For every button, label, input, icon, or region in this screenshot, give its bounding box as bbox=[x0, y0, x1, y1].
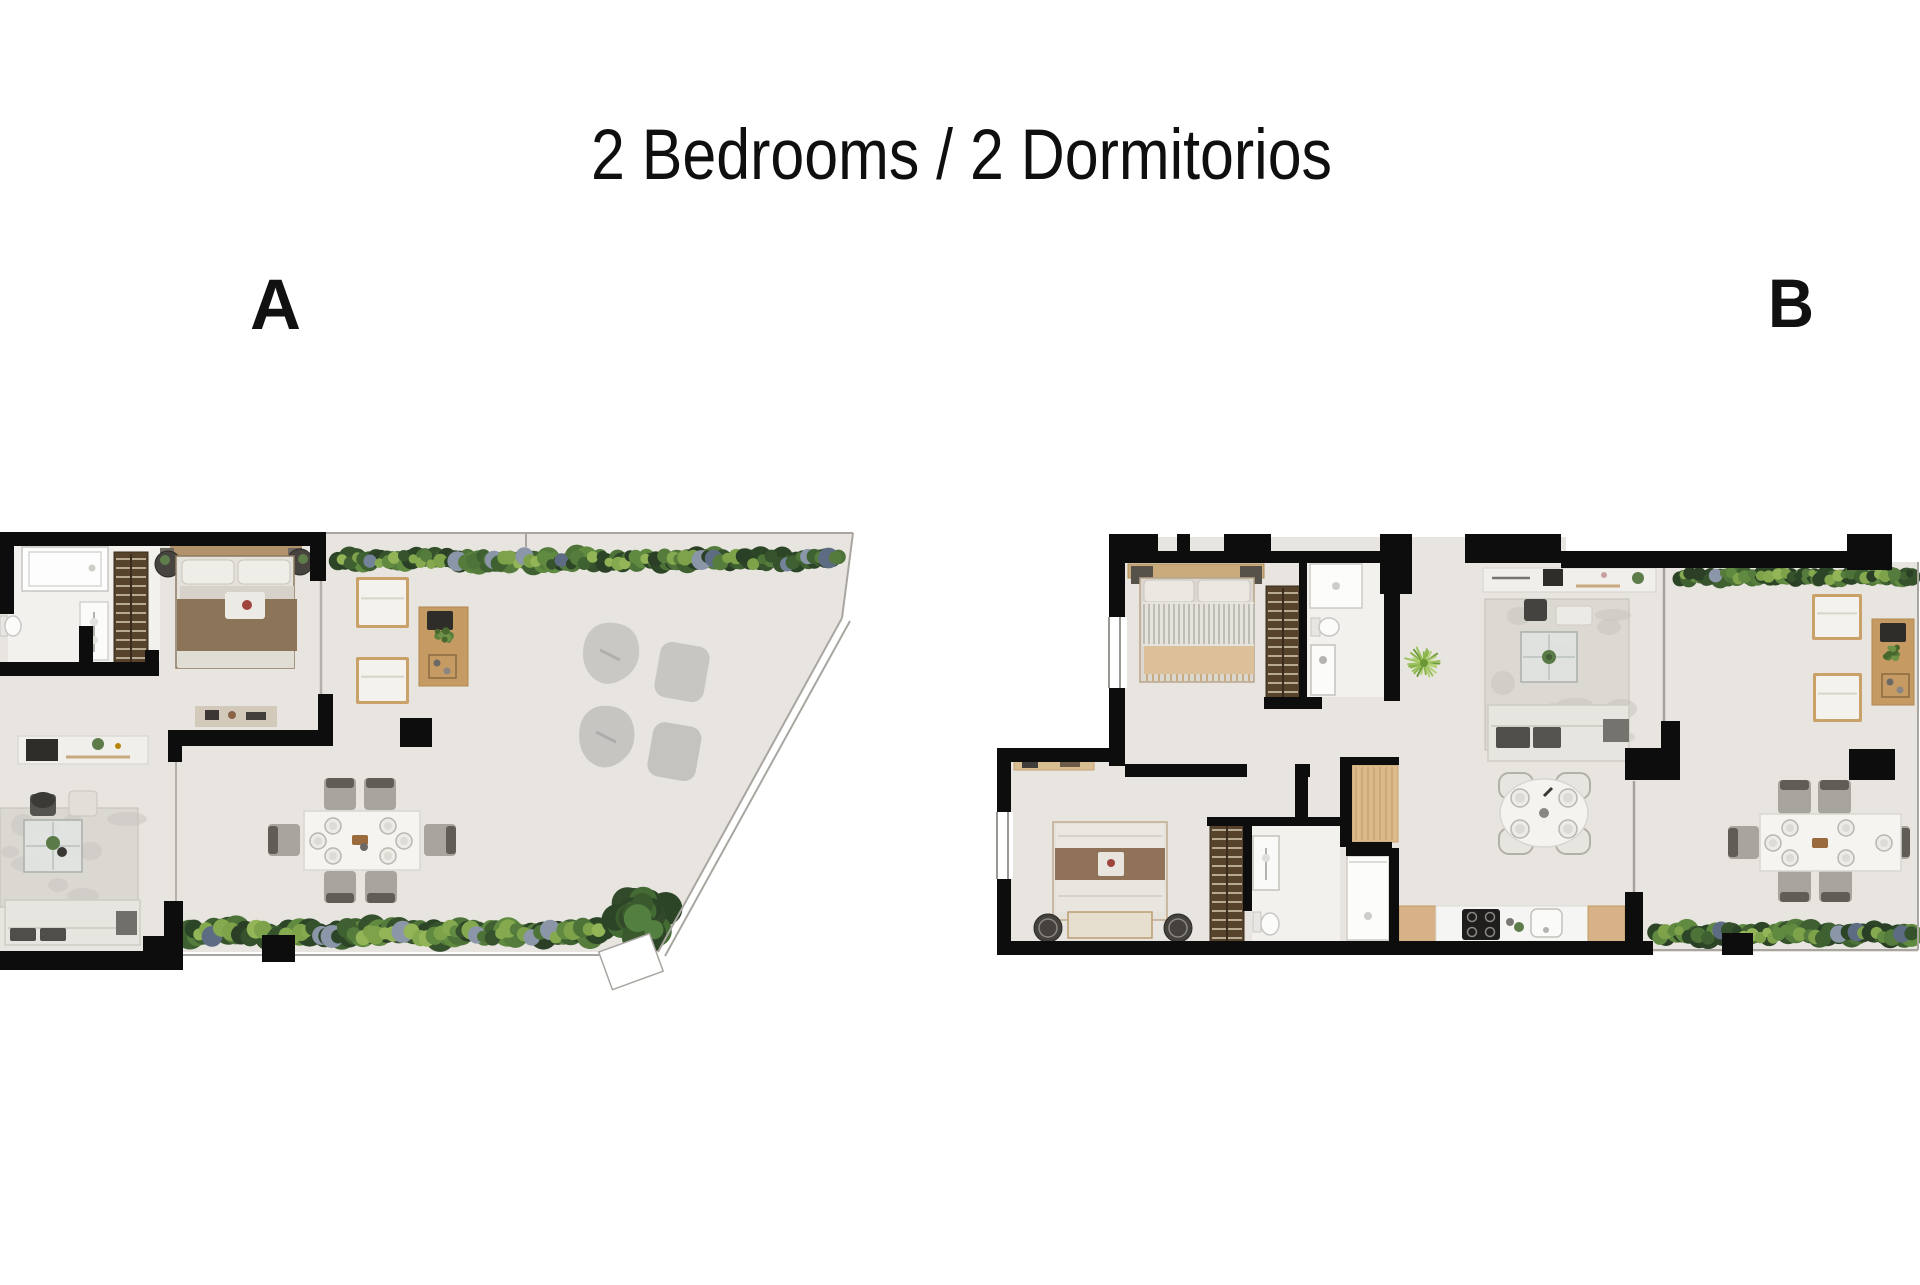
svg-text:B: B bbox=[1768, 265, 1814, 342]
svg-text:2 Bedrooms / 2 Dormitorios: 2 Bedrooms / 2 Dormitorios bbox=[591, 116, 1332, 195]
svg-text:A: A bbox=[250, 266, 301, 345]
